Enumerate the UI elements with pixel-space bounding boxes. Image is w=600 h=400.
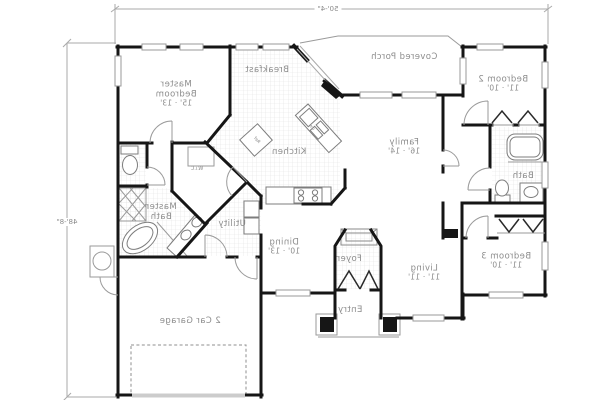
bedroom2-closet-chevrons xyxy=(492,111,538,123)
door-bedroom-3 xyxy=(466,216,488,238)
bathtub2-icon xyxy=(507,134,543,162)
bedroom3-closet-chevrons xyxy=(499,219,543,232)
water-heater-icon xyxy=(90,246,114,277)
door-linen xyxy=(443,150,459,166)
closet-shelf xyxy=(188,147,214,166)
door-bath xyxy=(468,168,490,190)
stove-icon xyxy=(266,187,331,204)
sink2-icon xyxy=(520,183,543,203)
dimension-width-label: 50'-4" xyxy=(314,5,341,13)
door-master-bedroom xyxy=(150,121,172,143)
floor-plan-drawing: dw Ref xyxy=(0,0,600,400)
door-bedroom-2 xyxy=(464,101,488,125)
washer-dryer-icon xyxy=(244,201,259,234)
floor-plan-page: dw Ref Master Bedroom15' · 13' Breakfast… xyxy=(0,0,600,400)
door-garage-side xyxy=(100,277,118,295)
porch-outline xyxy=(300,36,462,47)
entry-posts xyxy=(320,80,458,332)
garage-door-dashed xyxy=(131,345,246,394)
door-garage-house xyxy=(235,257,257,279)
dimension-height-label: 48'-8" xyxy=(53,218,80,226)
door-toilet-room xyxy=(147,167,165,185)
toilet-icon xyxy=(121,146,138,175)
toilet2-icon xyxy=(495,180,510,202)
